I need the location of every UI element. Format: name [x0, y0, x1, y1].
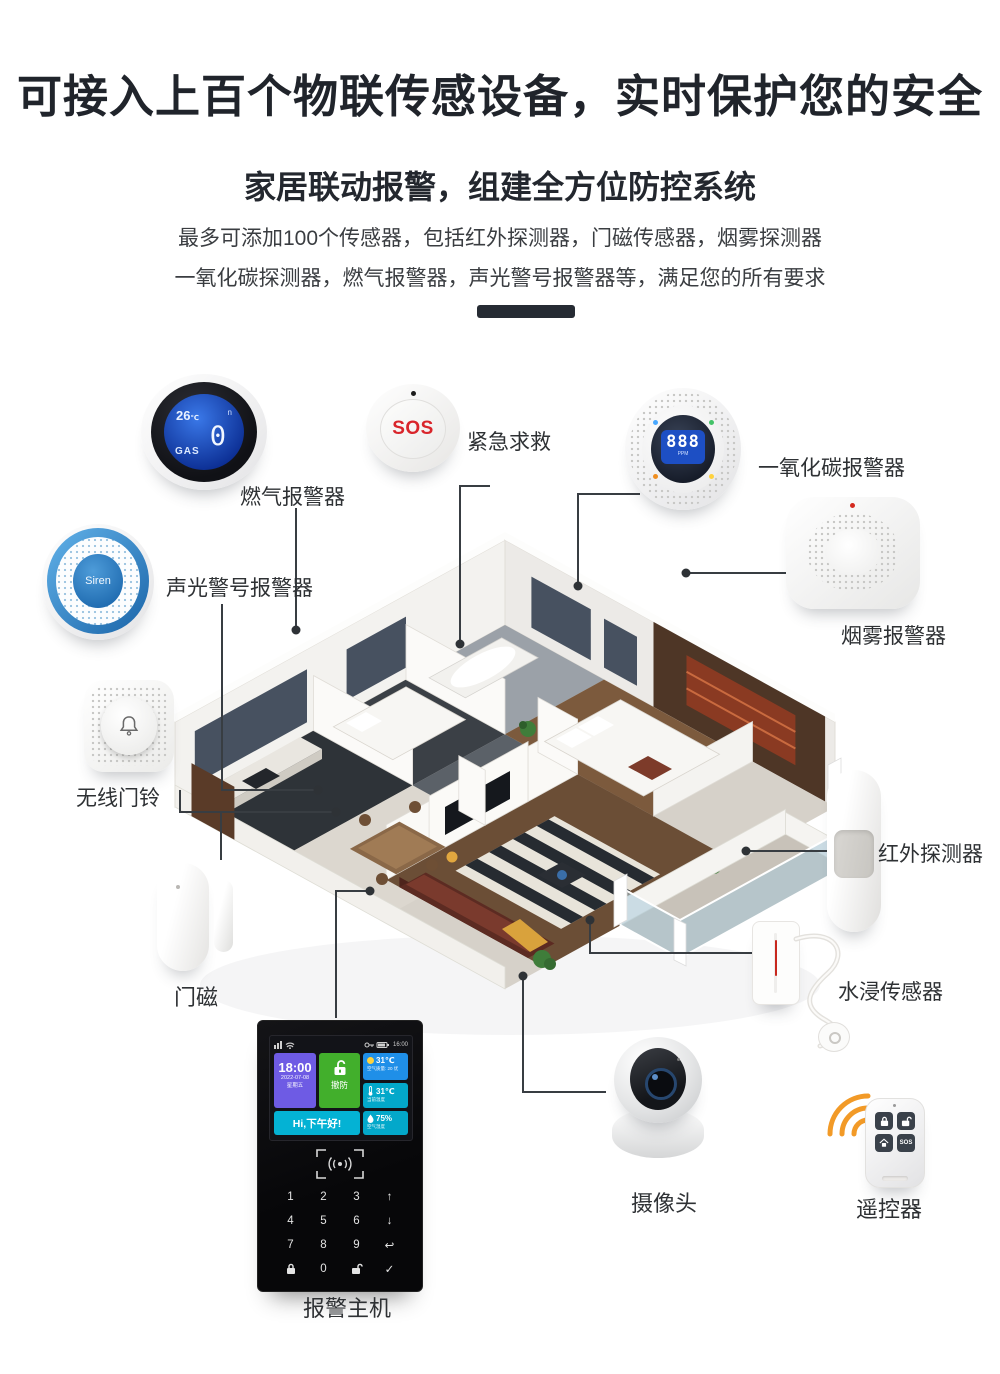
gas-mode-icon: n — [228, 408, 232, 417]
unlock-icon — [332, 1059, 348, 1077]
co-led-yellow — [709, 474, 714, 479]
siren-center: Siren — [73, 554, 123, 608]
remote-led — [893, 1104, 896, 1107]
keypad-key-up: ↑ — [373, 1185, 406, 1209]
keypad-key-5: 5 — [307, 1209, 340, 1233]
page: 可接入上百个物联传感设备，实时保护您的安全 家居联动报警，组建全方位防控系统 最… — [0, 0, 1000, 1374]
host-humidity: 75% — [376, 1114, 392, 1123]
keypad-key-down: ↓ — [373, 1209, 406, 1233]
page-title: 可接入上百个物联传感设备，实时保护您的安全 — [0, 60, 1000, 125]
camera-led — [677, 1058, 680, 1061]
host-time: 18:00 — [274, 1060, 316, 1075]
host-mode-tile: 撤防 — [319, 1053, 360, 1108]
smoke-led-dot — [850, 503, 855, 508]
host-indoor-sub: 当前温度 — [363, 1096, 408, 1103]
siren-label: 声光警号报警器 — [166, 572, 313, 602]
remote-home-arm-button — [875, 1134, 893, 1152]
keypad-key-1: 1 — [274, 1185, 307, 1209]
keypad-key-2: 2 — [307, 1185, 340, 1209]
lock-icon — [880, 1116, 889, 1127]
camera-label: 摄像头 — [631, 1186, 697, 1218]
remote-sos-button: SOS — [897, 1134, 915, 1152]
alarm-host-device: 16:00 18:00 2022-07-08 星期五 撤防 — [257, 1020, 423, 1292]
co-alarm-label: 一氧化碳报警器 — [758, 452, 905, 482]
pir-label: 红外探测器 — [878, 838, 983, 868]
sun-icon — [367, 1057, 374, 1064]
smoke-alarm-device — [786, 497, 920, 609]
doorbell-button — [101, 697, 157, 755]
keypad-key-4: 4 — [274, 1209, 307, 1233]
sos-led-dot — [411, 391, 416, 396]
co-alarm-device: 888 PPM — [625, 388, 741, 510]
keypad-key-6: 6 — [340, 1209, 373, 1233]
page-subtitle: 家居联动报警，组建全方位防控系统 — [0, 162, 1000, 208]
host-screen: 16:00 18:00 2022-07-08 星期五 撤防 — [269, 1035, 413, 1141]
remote-label: 遥控器 — [856, 1192, 922, 1224]
host-weekday: 星期五 — [274, 1081, 316, 1089]
keypad-key-7: 7 — [274, 1233, 307, 1257]
gas-alarm-bezel: 26℃ n 0 GAS — [151, 382, 257, 482]
keypad-key-back: ↩ — [373, 1233, 406, 1257]
host-greeting-tile: Hi,下午好! — [274, 1111, 360, 1135]
bell-icon — [115, 712, 143, 740]
alarm-host-label: 报警主机 — [303, 1291, 391, 1323]
co-led-orange — [653, 474, 658, 479]
doorbell-label: 无线门铃 — [76, 782, 160, 812]
apartment-floorplan-illustration — [150, 515, 860, 1105]
unlock-icon — [351, 1263, 363, 1275]
signal-wifi-icons — [274, 1040, 296, 1049]
thermometer-icon — [367, 1086, 374, 1096]
remote-arm-button — [875, 1112, 893, 1130]
keypad-key-0: 0 — [307, 1257, 340, 1281]
unlock-icon — [901, 1116, 912, 1127]
host-time-tile: 18:00 2022-07-08 星期五 — [274, 1053, 316, 1108]
gas-temp-value: 26℃ — [176, 408, 199, 423]
droplet-icon — [367, 1114, 374, 1123]
host-tile-grid: 18:00 2022-07-08 星期五 撤防 31℃ 空气质量: 20 优 — [274, 1053, 408, 1135]
co-lcd-screen: 888 PPM — [661, 430, 705, 464]
sos-label: 紧急求救 — [467, 426, 551, 456]
sos-button-device: SOS — [366, 384, 460, 472]
keypad-key-8: 8 — [307, 1233, 340, 1257]
smoke-center — [825, 529, 881, 575]
co-led-blue — [653, 420, 658, 425]
key-battery-icons — [364, 1041, 390, 1049]
doorbell-device — [84, 680, 174, 772]
pir-detector-device — [827, 770, 881, 932]
lens-highlight — [652, 1074, 658, 1080]
water-sensor-indicator — [775, 940, 778, 976]
remote-disarm-button — [897, 1112, 915, 1130]
pir-sensor-window — [834, 830, 874, 878]
host-weather-sub: 空气质量: 20 优 — [363, 1065, 408, 1072]
keypad-key-3: 3 — [340, 1185, 373, 1209]
host-mode-text: 撤防 — [319, 1079, 360, 1091]
door-sensor-magnet — [214, 880, 233, 952]
remote-device: SOS — [865, 1098, 925, 1188]
door-sensor-led — [176, 885, 180, 889]
gas-screen-label: GAS — [175, 446, 200, 457]
gas-alarm-device: 26℃ n 0 GAS — [141, 374, 267, 490]
door-sensor-main — [157, 863, 209, 971]
gas-reading-value: 0 — [210, 421, 226, 452]
host-keypad: 123↑456↓789↩0✓ — [274, 1185, 406, 1281]
water-sensor-probe — [818, 1022, 850, 1052]
host-statusbar-time: 16:00 — [393, 1042, 408, 1048]
camera-lens — [645, 1068, 677, 1100]
rfid-zone-icon — [316, 1149, 364, 1179]
host-weather-temp: 31℃ — [376, 1056, 395, 1065]
description-line-1: 最多可添加100个传感器，包括红外探测器，门磁传感器，烟雾探测器 — [0, 222, 1000, 252]
keypad-key-ok: ✓ — [373, 1257, 406, 1281]
keypad-key-9: 9 — [340, 1233, 373, 1257]
smoke-alarm-label: 烟雾报警器 — [841, 620, 946, 650]
host-humidity-tile: 75% 空气湿度 — [363, 1111, 408, 1135]
co-reading-value: 888 — [661, 433, 705, 451]
keypad-key-lock — [274, 1257, 307, 1281]
remote-slot — [882, 1176, 908, 1181]
host-temp-tile: 31℃ 当前温度 — [363, 1083, 408, 1108]
siren-device-text: Siren — [85, 575, 111, 587]
host-weather-tile: 31℃ 空气质量: 20 优 — [363, 1053, 408, 1080]
gas-alarm-label: 燃气报警器 — [240, 481, 345, 511]
co-led-green — [709, 420, 714, 425]
sos-button-text: SOS — [392, 418, 434, 440]
water-sensor-label: 水浸传感器 — [838, 976, 943, 1006]
home-lock-icon — [879, 1138, 889, 1148]
gas-alarm-screen: 26℃ n 0 GAS — [164, 394, 244, 470]
lock-icon — [286, 1263, 296, 1275]
water-probe-contact — [829, 1032, 841, 1044]
sos-button-ring: SOS — [380, 399, 446, 459]
host-humidity-sub: 空气湿度 — [363, 1123, 408, 1130]
description-line-2: 一氧化碳探测器，燃气报警器，声光警号报警器等，满足您的所有要求 — [0, 262, 1000, 292]
door-sensor-label: 门磁 — [174, 980, 218, 1012]
siren-device: Siren — [42, 524, 154, 640]
camera-face — [630, 1048, 686, 1110]
section-divider — [477, 305, 575, 318]
host-statusbar: 16:00 — [274, 1039, 408, 1050]
remote-buttons: SOS — [875, 1112, 915, 1152]
host-indoor-temp: 31℃ — [376, 1087, 395, 1096]
keypad-key-unlock — [340, 1257, 373, 1281]
camera-device — [614, 1037, 702, 1123]
